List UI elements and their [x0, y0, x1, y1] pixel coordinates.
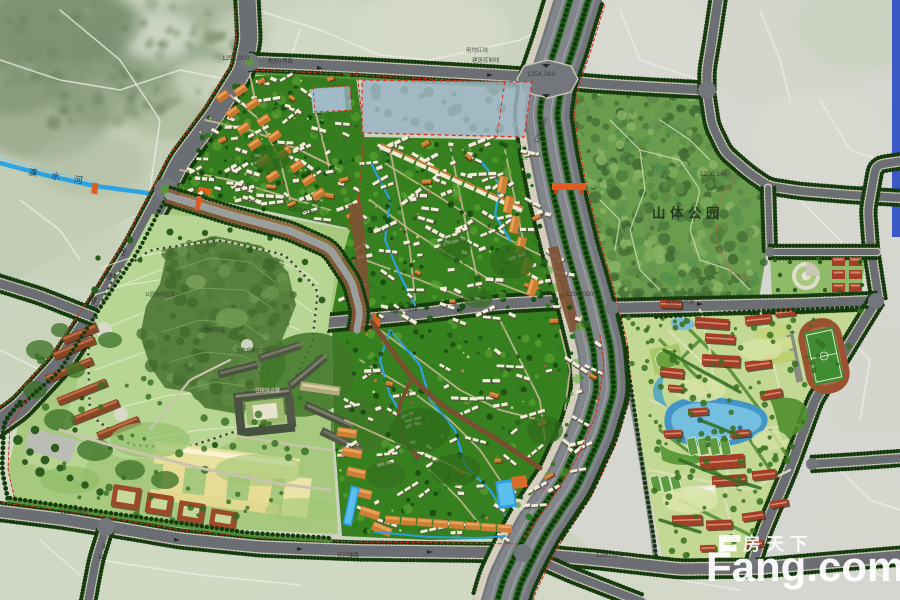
svg-text:1250.140: 1250.140 [700, 171, 727, 178]
svg-text:1250.900: 1250.900 [60, 509, 87, 516]
svg-text:1254.000: 1254.000 [566, 291, 593, 298]
svg-text:住院综合楼: 住院综合楼 [255, 387, 280, 394]
svg-text:生态观景示范区: 生态观景示范区 [236, 347, 271, 354]
svg-text:山体公园: 山体公园 [652, 205, 724, 221]
svg-text:规划1号路: 规划1号路 [268, 57, 294, 65]
svg-text:Fang.com: Fang.com [706, 543, 900, 590]
svg-text:规划04号路: 规划04号路 [666, 298, 695, 306]
svg-text:用地红线: 用地红线 [466, 46, 489, 54]
svg-text:1250.824: 1250.824 [596, 552, 623, 559]
svg-text:山地景观区: 山地景观区 [198, 326, 226, 334]
svg-text:1251.000: 1251.000 [222, 55, 249, 62]
svg-text:号: 号 [98, 555, 104, 562]
svg-text:公园休闲区域: 公园休闲区域 [145, 291, 175, 298]
svg-text:125X.263: 125X.263 [527, 71, 555, 78]
svg-text:天河潭路: 天河潭路 [337, 551, 360, 559]
svg-text:建筑控制线: 建筑控制线 [472, 56, 500, 64]
